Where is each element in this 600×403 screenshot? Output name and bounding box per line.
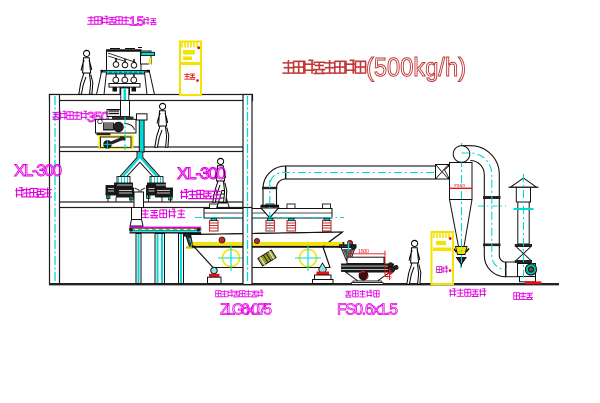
svg-text:(500kg/h): (500kg/h) [366, 52, 466, 82]
svg-text:1500: 1500 [358, 249, 369, 255]
svg-text:FS0.6x1.5: FS0.6x1.5 [337, 302, 398, 319]
svg-text:1.5: 1.5 [129, 14, 144, 29]
svg-text:#060: #060 [454, 183, 465, 189]
svg-text:XL-300: XL-300 [177, 164, 226, 183]
svg-text:ZLG6x0.75: ZLG6x0.75 [220, 302, 272, 319]
svg-text:XL-300: XL-300 [14, 161, 62, 180]
